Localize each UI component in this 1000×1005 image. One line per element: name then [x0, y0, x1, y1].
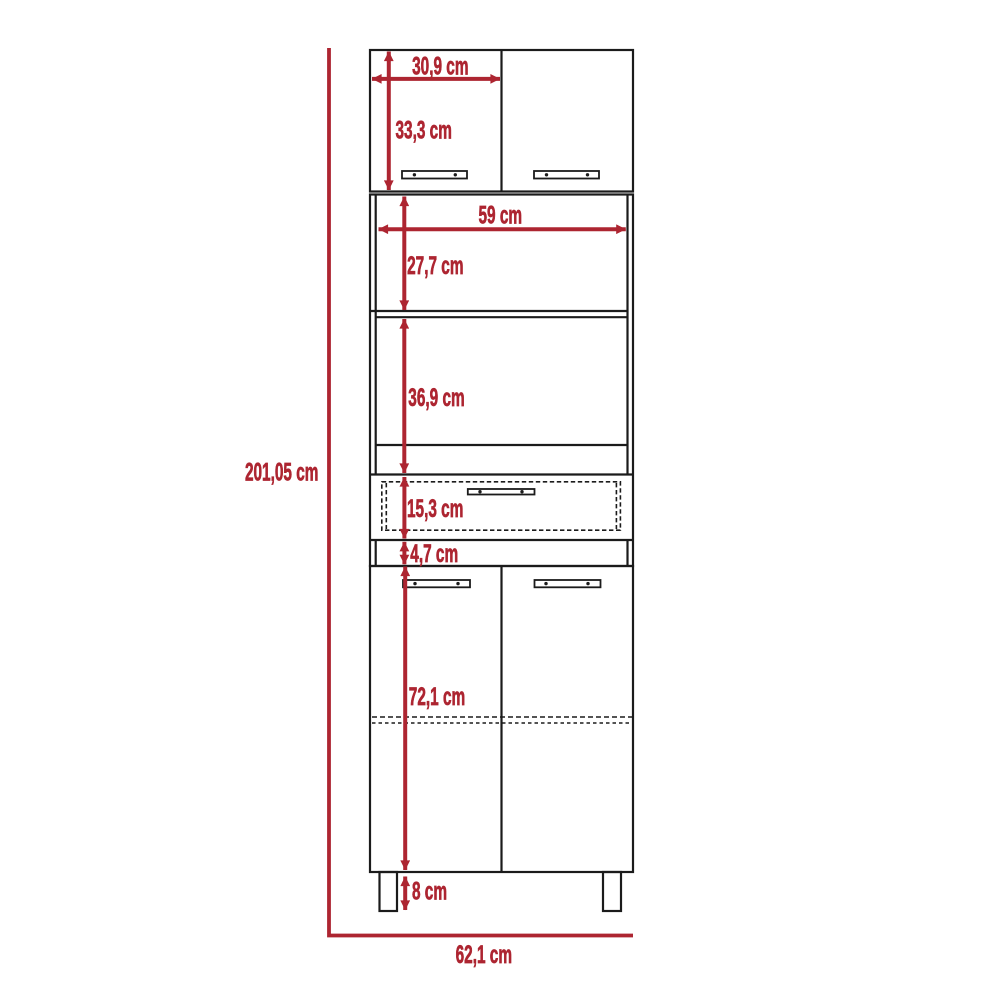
svg-text:33,3 cm: 33,3 cm	[395, 117, 451, 145]
svg-text:36,9 cm: 36,9 cm	[408, 384, 464, 412]
svg-text:62,1 cm: 62,1 cm	[456, 941, 512, 969]
svg-text:4,7 cm: 4,7 cm	[410, 540, 458, 568]
svg-text:72,1 cm: 72,1 cm	[409, 683, 465, 711]
svg-text:8 cm: 8 cm	[412, 878, 447, 906]
svg-text:30,9 cm: 30,9 cm	[412, 53, 468, 81]
svg-text:15,3 cm: 15,3 cm	[407, 495, 463, 523]
svg-text:27,7 cm: 27,7 cm	[407, 252, 463, 280]
svg-text:59 cm: 59 cm	[479, 202, 523, 230]
svg-text:201,05 cm: 201,05 cm	[245, 459, 319, 487]
